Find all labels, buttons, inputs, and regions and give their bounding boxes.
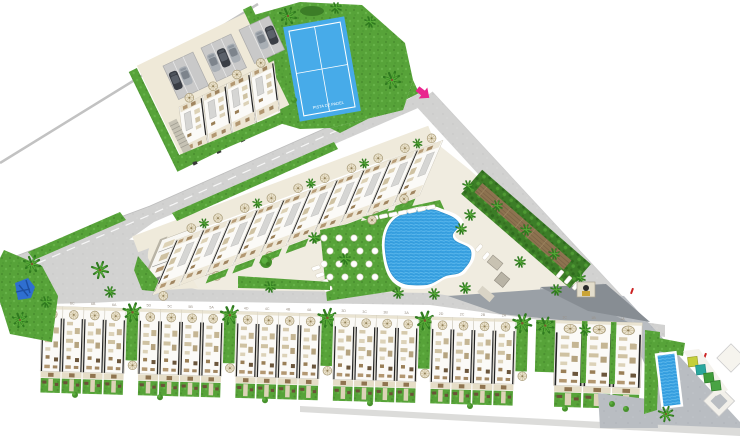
svg-text:3A: 3A bbox=[404, 311, 409, 315]
svg-text:5C: 5C bbox=[168, 304, 173, 308]
svg-text:6B: 6B bbox=[91, 302, 96, 306]
svg-text:3C: 3C bbox=[362, 310, 367, 314]
svg-text:5D: 5D bbox=[147, 304, 152, 308]
svg-text:5B: 5B bbox=[188, 305, 193, 309]
svg-text:3D: 3D bbox=[341, 309, 346, 313]
svg-text:1B: 1B bbox=[591, 316, 596, 320]
svg-text:6A: 6A bbox=[112, 303, 117, 307]
svg-text:2D: 2D bbox=[439, 312, 444, 316]
svg-text:2B: 2B bbox=[481, 313, 486, 317]
svg-text:4C: 4C bbox=[265, 307, 270, 311]
svg-text:4A: 4A bbox=[307, 308, 312, 312]
svg-text:1C: 1C bbox=[562, 315, 567, 319]
svg-text:4B: 4B bbox=[286, 308, 291, 312]
svg-text:5A: 5A bbox=[209, 306, 214, 310]
svg-text:1A: 1A bbox=[620, 317, 625, 321]
svg-text:2C: 2C bbox=[460, 313, 465, 317]
svg-text:4D: 4D bbox=[244, 306, 249, 310]
svg-text:2A: 2A bbox=[502, 314, 507, 318]
svg-text:6C: 6C bbox=[70, 302, 75, 306]
svg-text:3B: 3B bbox=[383, 310, 388, 314]
